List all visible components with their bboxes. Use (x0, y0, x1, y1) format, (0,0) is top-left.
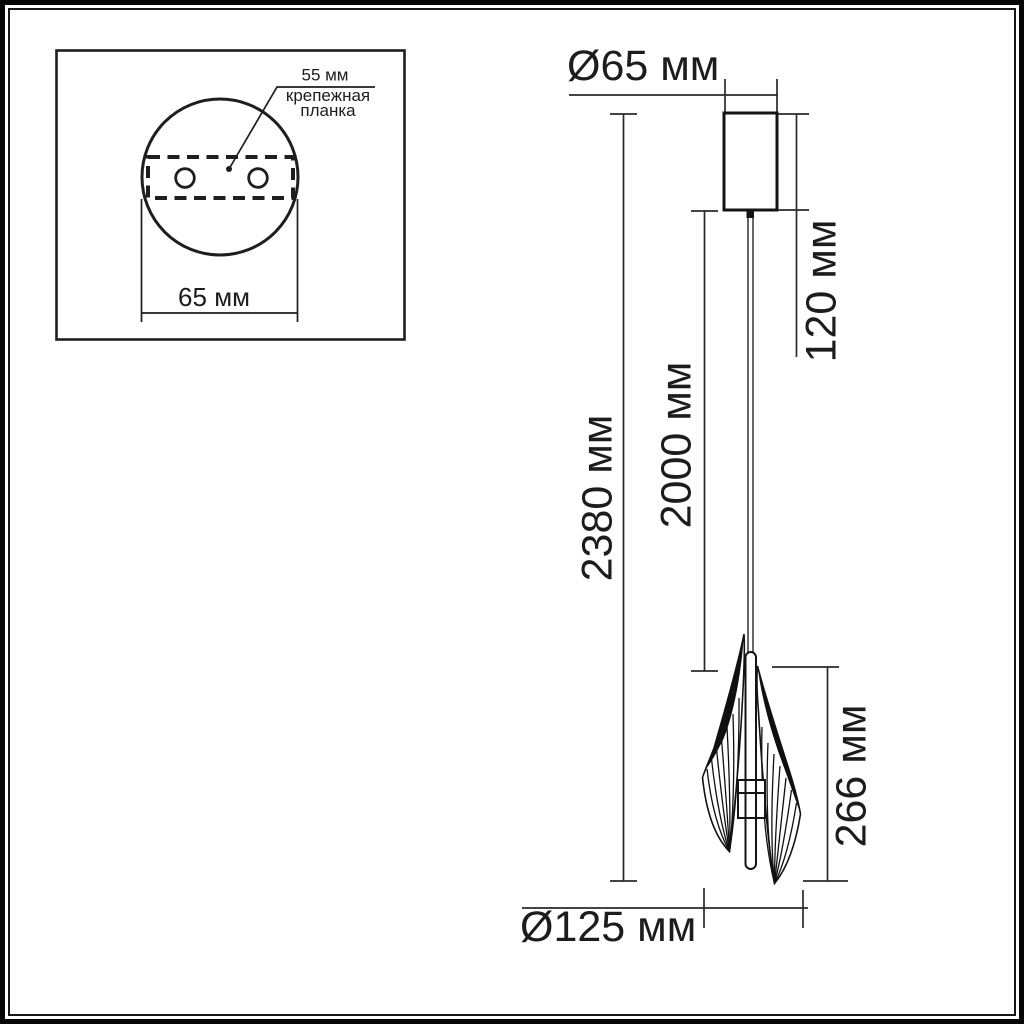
screw-hole-right (249, 169, 268, 188)
inset-base-diameter-label: 65 мм (178, 284, 250, 310)
inset-plate-name-line2: планка (286, 104, 370, 119)
canopy-height-label: 120 мм (801, 220, 844, 363)
canopy-diameter-label: Ø65 мм (567, 45, 719, 88)
inset-plate-name-label: крепежная планка (286, 89, 370, 118)
canopy-base-circle (142, 99, 298, 255)
pendant-fixture (703, 113, 801, 884)
inset-plate-dimension-label: 55 мм (301, 67, 348, 84)
mounting-plate-dashed-outline (148, 157, 293, 198)
shade-diameter-label: Ø125 мм (520, 906, 696, 949)
cable-length-label: 2000 мм (656, 362, 699, 529)
cord-grip (747, 210, 755, 218)
overall-length-label: 2380 мм (577, 415, 620, 582)
screw-hole-left (176, 169, 195, 188)
pendant-lamp-dimension-drawing: 55 мм крепежная планка 65 мм Ø65 мм 120 … (0, 0, 1024, 1024)
canopy (724, 113, 777, 210)
shade-height-label: 266 мм (831, 705, 874, 848)
drawing-linework (0, 0, 1024, 1024)
stem-rod (746, 652, 757, 869)
